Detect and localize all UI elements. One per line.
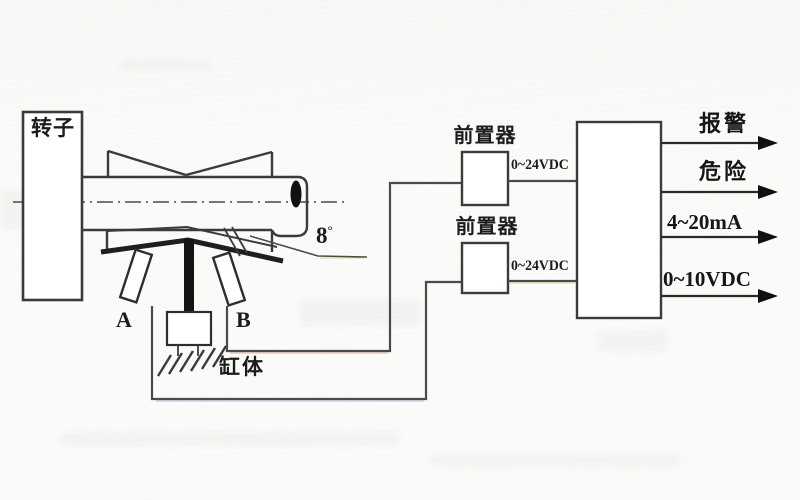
shaft-end-mark <box>291 181 302 208</box>
sensor-a-label: A <box>116 308 132 331</box>
arrowhead-icon <box>758 185 778 199</box>
probe-b <box>213 253 245 306</box>
output-label-current: 4~20mA <box>667 211 742 233</box>
probe-mount-bar <box>184 239 194 313</box>
probe-mount-box <box>167 312 211 345</box>
arrowhead-icon <box>758 230 778 244</box>
probe-a <box>120 250 152 303</box>
angle-value: 8 <box>316 223 328 248</box>
preamp1-box <box>462 152 508 205</box>
preamp1-label: 前置器 <box>447 126 523 147</box>
ground-hatching <box>158 346 226 376</box>
rotor-label: 转子 <box>26 117 80 139</box>
output-arrow-voltage <box>661 289 778 303</box>
taper-angle-label: 8° <box>316 224 333 248</box>
schematic-drawing <box>0 0 800 500</box>
rotor-box <box>23 112 82 300</box>
collar-upper-cone <box>108 151 272 177</box>
output-arrow-alarm <box>661 136 778 150</box>
preamp2-label: 前置器 <box>449 217 525 238</box>
monitor-box <box>577 122 661 318</box>
sensor-b-label: B <box>236 308 251 331</box>
angle-reference-line <box>250 236 367 257</box>
output-label-danger: 危险 <box>699 160 749 183</box>
shaft <box>82 177 307 236</box>
degree-symbol: ° <box>328 222 333 237</box>
preamp2-supply-label: 0~24VDC <box>511 259 569 275</box>
arrowhead-icon <box>758 289 778 303</box>
scanned-diagram-page: 转子 A B 缸体 8° 前置器 前置器 0~24VDC 0~24VDC 报警 … <box>0 0 800 500</box>
cylinder-body-label: 缸体 <box>219 356 265 378</box>
output-label-voltage: 0~10VDC <box>663 268 751 290</box>
output-label-alarm: 报警 <box>699 112 749 135</box>
output-arrow-danger <box>661 185 778 199</box>
arrowhead-icon <box>758 136 778 150</box>
preamp2-box <box>462 243 508 293</box>
preamp1-supply-label: 0~24VDC <box>511 158 569 174</box>
